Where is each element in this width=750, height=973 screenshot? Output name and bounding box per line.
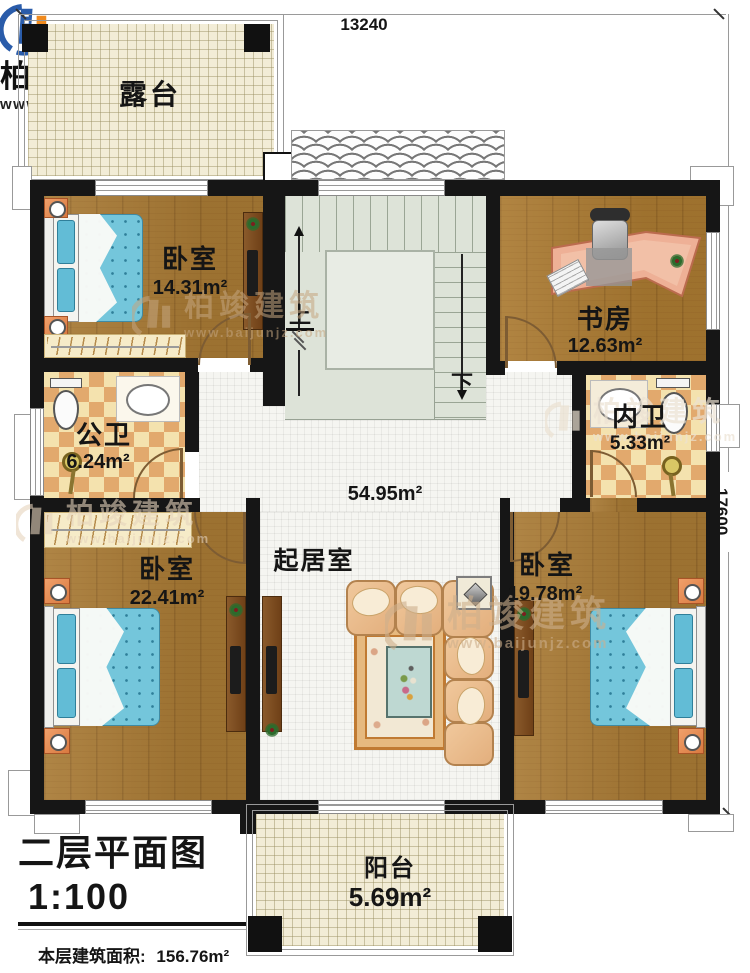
wall-segment [500,498,510,512]
sliding-door [95,180,208,196]
wall-segment [486,180,500,375]
wall-segment [185,372,199,452]
room-area-study: 12.63m² [550,336,660,357]
column [244,24,270,52]
wall-segment [250,358,285,372]
wall-segment [30,180,44,814]
room-label-bedroom-top-left: 卧室 [140,246,240,273]
floor-area-value: 156.76m² [156,947,229,966]
column [478,916,512,952]
window [706,232,720,330]
nightstand-icon [678,578,704,604]
tv-icon [266,646,277,694]
room-area-ensuite-bath: 5.33m² [592,434,688,454]
bed-headboard [696,606,706,728]
tv-icon [247,250,258,296]
pillow-icon [57,220,75,264]
door-leaf [248,313,251,365]
window [318,180,445,196]
window [85,800,212,814]
plant-icon [664,248,690,274]
wall-segment [30,800,85,814]
toilet-icon [656,378,690,388]
plan-scale: 1:100 [28,876,130,917]
plant-icon [264,722,280,738]
stair-landing [325,250,435,370]
room-label-bedroom-bottom-right: 卧室 [497,552,597,579]
room-label-study: 书房 [555,306,655,333]
room-area-living: 54.95m² [333,484,437,505]
plant-icon [516,606,532,622]
room-label-balcony: 阳台 [335,856,445,881]
wall-segment [30,498,200,512]
floor-area-label: 本层建筑面积: [38,947,146,966]
door-leaf [590,450,593,497]
title-rule [18,922,246,926]
room-area-balcony: 5.69m² [328,884,452,911]
room-label-ensuite-bath: 内卫 [592,404,688,431]
wall-segment [30,358,198,372]
window-bay [688,814,734,832]
wall-segment [637,498,720,512]
room-label-bedroom-bottom-left: 卧室 [117,556,217,583]
title-block: 二层平面图 1:100 本层建筑面积: 156.76m² 层高: 3.3m [18,824,318,954]
nightstand-icon [44,728,70,754]
plant-icon [228,602,244,618]
end-table-icon [456,576,492,610]
room-label-terrace: 露台 [95,80,205,109]
nightstand-icon [678,728,704,754]
desk-tray [586,248,632,286]
door-leaf [180,448,183,498]
tv-icon [230,646,241,694]
wardrobe-icon [44,334,186,358]
room-area-bedroom-bottom-left: 22.41m² [112,588,222,609]
wall-segment [557,361,720,375]
stair-treads-upper [285,196,486,252]
wall-segment [263,180,285,406]
sofa-icon [444,722,494,766]
room-area-bedroom-bottom-right: 19.78m² [490,584,600,605]
pillow-icon [57,614,76,664]
room-area-bedroom-top-left: 14.31m² [135,278,245,299]
pillow-icon [57,668,76,718]
pillow-icon [57,268,75,312]
pillow-icon [674,614,693,664]
wardrobe-icon [44,512,192,548]
plan-title: 二层平面图 1:100 [18,824,318,918]
nightstand-icon [44,316,68,336]
room-label-living: 起居室 [256,548,372,574]
door-leaf [243,512,246,564]
floor-plan: 13240 17600 上 下 [0,0,750,973]
stair-down-label: 下 [448,372,476,395]
stair-arrow-up-line [298,350,300,396]
wall-segment [246,498,260,814]
plan-title-text: 二层平面图 [18,832,208,873]
stair-up-label: 上 [286,304,314,331]
window-bay [12,166,32,210]
stair-arrow-up-head [294,226,304,236]
window [30,408,44,496]
floor-area-line: 本层建筑面积: 156.76m² [38,942,318,967]
wall-segment [486,361,505,375]
tv-icon [518,650,529,698]
plant-icon [245,216,261,232]
toilet-icon [50,378,82,388]
door-threshold [590,498,637,512]
nightstand-icon [44,198,68,218]
room-label-public-bath: 公卫 [54,422,154,449]
nightstand-icon [44,578,70,604]
title-rule-thin [18,929,246,930]
coffee-table-icon [386,646,432,718]
stair-arrow-down-line [461,254,463,390]
window [706,404,720,452]
roof-tiles [291,130,505,180]
dimension-top-label: 13240 [322,16,406,34]
door-leaf [505,316,508,368]
column [22,24,48,52]
wall-segment [663,800,720,814]
room-area-public-bath: 6.24m² [48,452,148,473]
window-bay [718,404,740,448]
window [545,800,663,814]
pillow-icon [674,668,693,718]
wall-segment [572,375,586,512]
sink-icon [126,384,170,416]
wall-segment [560,498,590,512]
